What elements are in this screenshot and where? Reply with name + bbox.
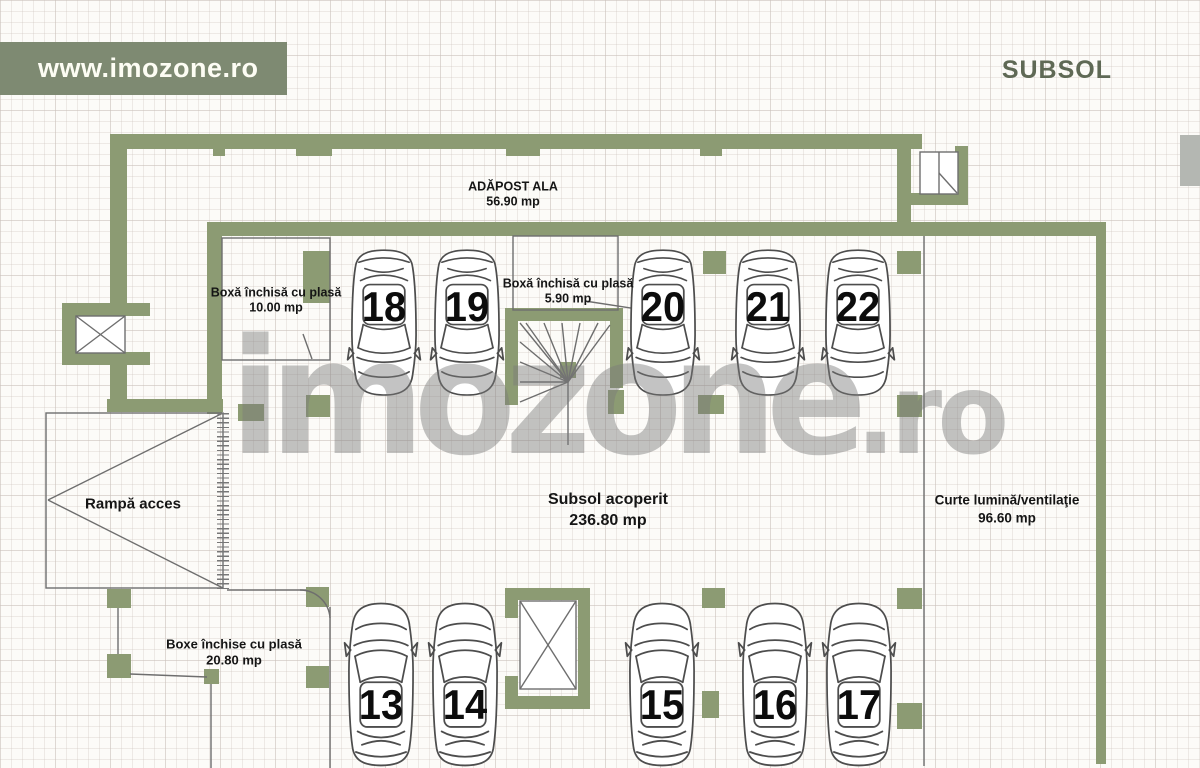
- parking-spot-number: 16: [753, 681, 797, 729]
- parking-spot-number: 18: [362, 283, 406, 331]
- room-label-rampa: Rampă acces: [85, 496, 181, 513]
- room-label-subsol: Subsol acoperit 236.80 mp: [548, 489, 668, 531]
- room-label-boxe: Boxe închise cu plasă 20.80 mp: [166, 637, 302, 668]
- column-pillar: [897, 588, 922, 609]
- wall-segment: [610, 308, 623, 388]
- wall-segment: [505, 308, 518, 405]
- wall-segment: [213, 149, 225, 156]
- wall-segment: [207, 222, 222, 414]
- plan-edge-fragment: [1180, 135, 1200, 186]
- parking-spot-number: 20: [641, 283, 685, 331]
- parking-spot-number: 21: [746, 283, 790, 331]
- column-pillar: [107, 589, 131, 608]
- wall-segment: [506, 149, 540, 156]
- column-pillar: [306, 666, 329, 688]
- room-label-boxa590: Boxă închisă cu plasă 5.90 mp: [503, 277, 634, 306]
- wall-segment: [897, 148, 911, 222]
- floor-plan-canvas: www.imozone.ro SUBSOL ADĂPOST ALA 56.90 …: [0, 0, 1200, 768]
- wall-segment: [110, 352, 127, 402]
- parking-spot-number: 15: [640, 681, 684, 729]
- parking-spot-number: 14: [443, 681, 487, 729]
- room-label-boxa10: Boxă închisă cu plasă 10.00 mp: [211, 286, 342, 315]
- column-pillar: [897, 395, 922, 417]
- wall-segment: [560, 362, 576, 378]
- wall-segment: [1096, 222, 1106, 764]
- column-pillar: [897, 703, 922, 729]
- wall-segment: [62, 352, 150, 365]
- wall-segment: [110, 134, 127, 306]
- website-banner: www.imozone.ro: [0, 42, 287, 95]
- column-pillar: [897, 251, 921, 274]
- room-label-curte: Curte lumină/ventilaţie 96.60 mp: [935, 492, 1080, 527]
- wall-segment: [505, 588, 518, 618]
- website-url: www.imozone.ro: [38, 53, 259, 84]
- parking-spot-number: 19: [445, 283, 489, 331]
- column-pillar: [107, 654, 131, 678]
- wall-segment: [110, 134, 922, 149]
- floor-title: SUBSOL: [1002, 56, 1112, 85]
- wall-segment: [505, 676, 518, 709]
- column-pillar: [702, 691, 719, 718]
- column-pillar: [238, 404, 264, 421]
- ramp-hatch-strip: [217, 413, 229, 589]
- wall-segment: [903, 193, 968, 205]
- wall-segment: [915, 222, 1105, 236]
- parking-spot-number: 17: [837, 681, 881, 729]
- column-pillar: [702, 588, 725, 608]
- parking-spot-number: 22: [836, 283, 880, 331]
- column-pillar: [703, 251, 726, 274]
- column-pillar: [306, 395, 330, 417]
- wall-segment: [107, 399, 223, 412]
- room-label-adapost: ADĂPOST ALA 56.90 mp: [468, 180, 558, 209]
- wall-segment: [608, 390, 624, 414]
- column-pillar: [204, 669, 219, 684]
- wall-segment: [296, 149, 332, 156]
- wall-segment: [207, 222, 919, 236]
- parking-spot-number: 13: [359, 681, 403, 729]
- wall-segment: [505, 308, 623, 321]
- wall-segment: [700, 149, 722, 156]
- column-pillar: [306, 587, 329, 607]
- wall-segment: [578, 588, 590, 709]
